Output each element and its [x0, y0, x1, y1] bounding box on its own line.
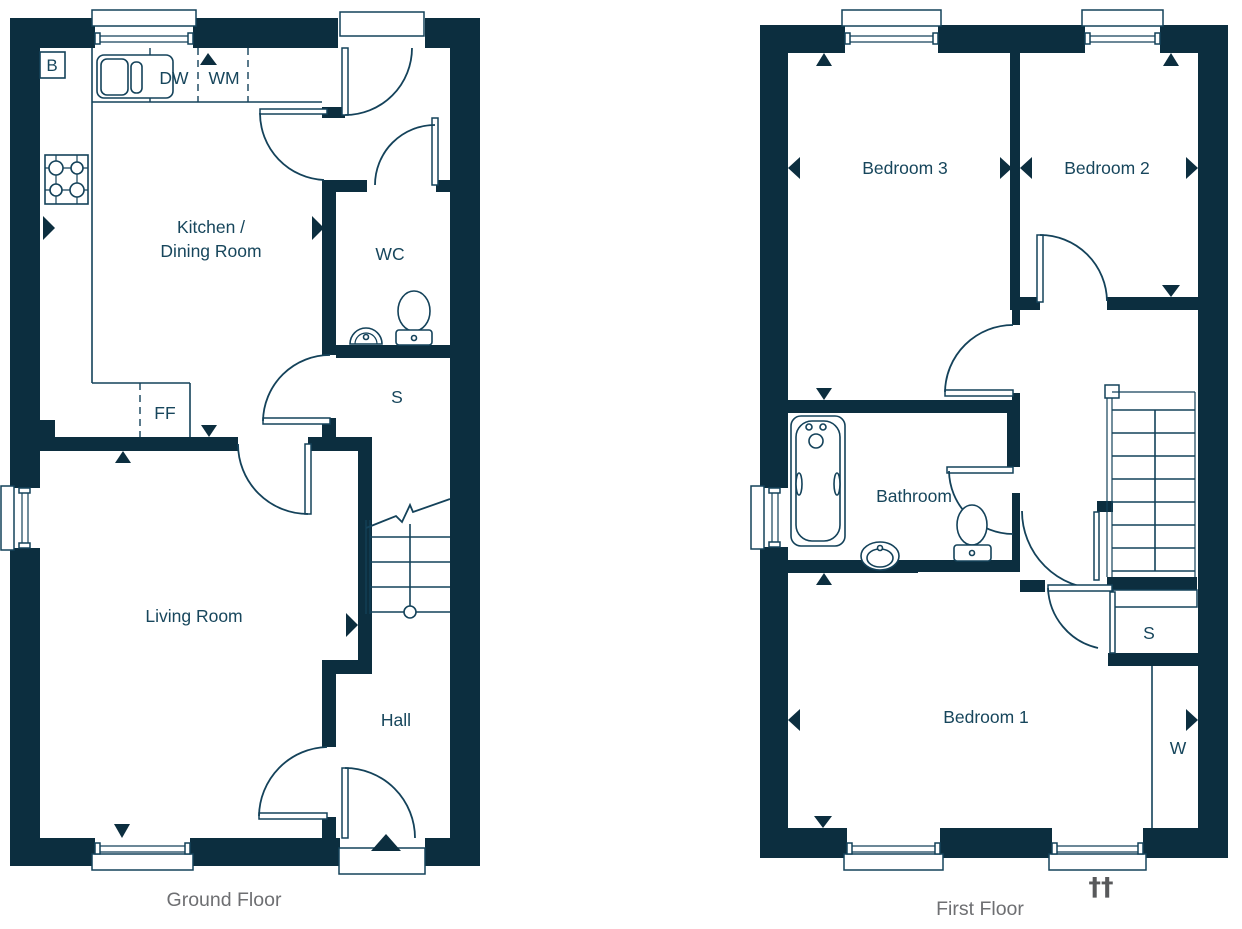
- arrow-right-icon: [1186, 157, 1198, 179]
- arrow-down-icon: [814, 816, 832, 828]
- ground-stairs: [366, 499, 450, 618]
- arrow-right-icon: [1186, 709, 1198, 731]
- store-side-wall: [1110, 592, 1115, 653]
- arrow-down-icon: [114, 824, 130, 838]
- arrow-left-icon: [1020, 157, 1032, 179]
- label-living-room: Living Room: [145, 606, 242, 626]
- label-wardrobe: W: [1170, 738, 1187, 758]
- label-ground-store: S: [391, 387, 403, 407]
- wc-toilet: [396, 291, 432, 345]
- label-bathroom: Bathroom: [876, 486, 952, 506]
- label-fridge-freezer: FF: [154, 403, 175, 423]
- ground-walls: [10, 18, 480, 866]
- ground-front-door: [339, 768, 425, 874]
- arrow-down-icon: [816, 388, 832, 400]
- daggers-symbol: ††: [1089, 872, 1114, 901]
- label-first-store: S: [1143, 623, 1155, 643]
- arrow-up-icon: [816, 573, 832, 585]
- arrow-up-icon: [200, 53, 217, 65]
- bathroom-toilet: [954, 505, 991, 561]
- first-window-bottom-1: [844, 843, 943, 870]
- ground-kitchen-living-door: [238, 444, 311, 514]
- arrow-right-icon: [346, 613, 358, 637]
- label-bedroom1: Bedroom 1: [943, 707, 1029, 727]
- label-kitchen-line1: Kitchen /: [177, 217, 245, 237]
- arrow-left-icon: [788, 157, 800, 179]
- ground-window-bottom: [92, 843, 193, 870]
- floorplan-drawing: B DW WM Kitchen / Dining Room WC FF S Li…: [0, 0, 1242, 929]
- label-bedroom2: Bedroom 2: [1064, 158, 1150, 178]
- label-wc: WC: [375, 244, 404, 264]
- ground-window-left: [1, 486, 30, 550]
- ground-wc-door: [375, 118, 438, 185]
- ground-store-door: [263, 355, 330, 424]
- bedroom1-door: [1048, 585, 1112, 648]
- first-stairs: [1105, 385, 1197, 653]
- arrow-left-icon: [788, 709, 800, 731]
- arrow-up-icon: [816, 53, 832, 66]
- arrow-down-icon: [201, 425, 217, 437]
- first-window-bottom-2: [1049, 843, 1146, 870]
- arrow-up-icon: [1163, 53, 1179, 66]
- ground-back-door: [340, 12, 424, 115]
- bedroom3-door: [945, 325, 1013, 396]
- label-washing-machine: WM: [208, 68, 239, 88]
- ground-lobby-door: [260, 109, 327, 180]
- label-hall: Hall: [381, 710, 411, 730]
- caption-first-floor: First Floor: [936, 898, 1024, 920]
- entrance-arrow-icon: [371, 834, 401, 851]
- first-window-top-bed2: [1082, 10, 1163, 44]
- label-bedroom3: Bedroom 3: [862, 158, 948, 178]
- kitchen-hob: [45, 155, 88, 204]
- caption-ground-floor: Ground Floor: [167, 889, 282, 911]
- ground-window-top: [92, 10, 196, 44]
- label-boiler: B: [46, 56, 57, 75]
- first-window-left-bathroom: [751, 486, 780, 549]
- arrow-right-icon: [43, 216, 55, 240]
- arrow-down-icon: [1162, 285, 1180, 297]
- ground-floor-plan: B DW WM Kitchen / Dining Room WC FF S Li…: [1, 10, 480, 911]
- wc-basin: [350, 328, 382, 344]
- stairs-bulkhead: [1113, 590, 1197, 607]
- first-window-top-bed3: [842, 10, 941, 44]
- floorplan-page: B DW WM Kitchen / Dining Room WC FF S Li…: [0, 0, 1242, 929]
- first-floor-plan: Bedroom 3 Bedroom 2 Bathroom S Bedroom 1…: [751, 10, 1228, 920]
- bath-tub: [791, 416, 845, 546]
- label-dishwasher: DW: [159, 68, 189, 88]
- bedroom2-door: [1037, 235, 1107, 302]
- ground-living-hall-door: [259, 747, 327, 819]
- label-kitchen-line2: Dining Room: [160, 241, 261, 261]
- arrow-up-icon: [115, 451, 131, 463]
- landing-cupboard-door: [1022, 511, 1100, 589]
- bathroom-basin: [861, 542, 899, 570]
